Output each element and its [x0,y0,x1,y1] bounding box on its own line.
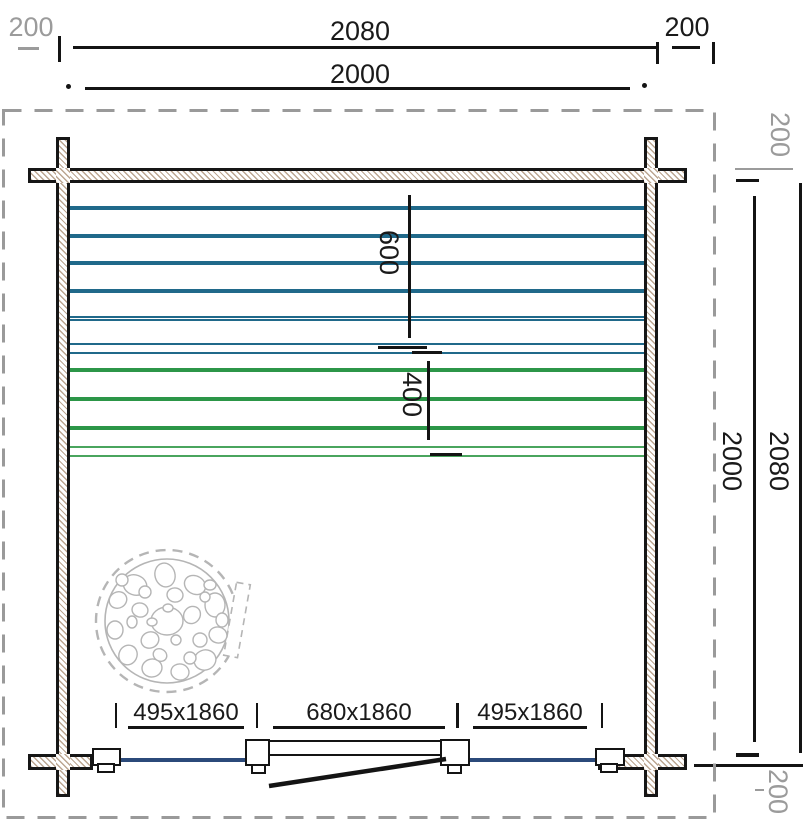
door-leaf [269,759,446,786]
vector-overlay [0,0,803,827]
stove-stones [106,561,229,682]
floor-plan-canvas: 200 2080 200 2000 200 2000 2080 200 600 [0,0,803,827]
roof-overhang-outline [4,111,715,818]
stove-heater [96,550,250,692]
